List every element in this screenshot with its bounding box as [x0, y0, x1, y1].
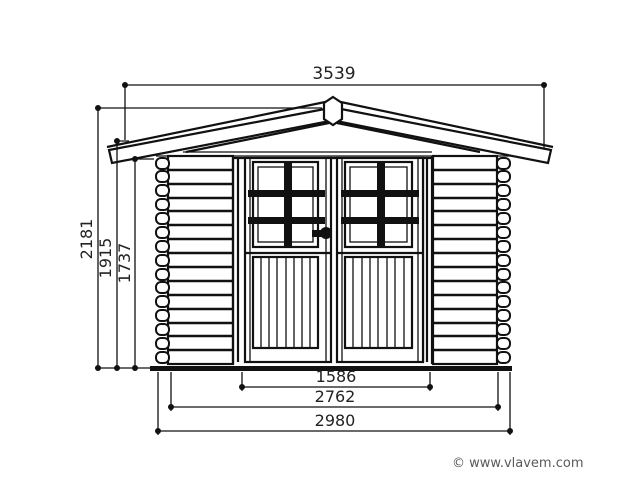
dim-wall-outer-label: 2762 [315, 387, 356, 406]
dim-door-opening-label: 1586 [316, 367, 357, 386]
left-door [245, 158, 331, 362]
left-wall-body [168, 156, 233, 364]
door-handle-knob [320, 227, 332, 239]
right-log-ends [497, 158, 510, 363]
left-log-ends [156, 158, 169, 363]
dim-ridge-height-label: 2181 [77, 219, 96, 260]
dim-wall-height-label: 1737 [115, 243, 134, 284]
roof [107, 97, 553, 163]
shed-dimension-drawing: 3539 2181 1915 1737 1586 [0, 0, 640, 480]
ridge-finial [324, 97, 342, 125]
dim-wall-height: 1737 [115, 156, 154, 371]
dim-roof-width-label: 3539 [312, 64, 355, 84]
dim-overall-label: 2980 [315, 411, 356, 430]
roof-fascia-left [109, 108, 330, 163]
right-wall-body [433, 156, 497, 364]
right-wall [433, 156, 510, 364]
copyright-text: © www.vlavem.com [452, 456, 584, 471]
roof-fascia-right [336, 108, 551, 163]
right-door [337, 158, 423, 362]
shed-elevation [95, 97, 553, 371]
dim-wall-height-lines [135, 159, 154, 368]
drawing-canvas: 3539 2181 1915 1737 1586 [0, 0, 640, 480]
left-wall [156, 156, 233, 364]
left-door-slats [261, 257, 310, 348]
left-window-bar-v [284, 163, 292, 247]
base [95, 366, 512, 371]
dim-eave-height-label: 1915 [96, 238, 115, 279]
right-window-bar-v [377, 163, 385, 247]
